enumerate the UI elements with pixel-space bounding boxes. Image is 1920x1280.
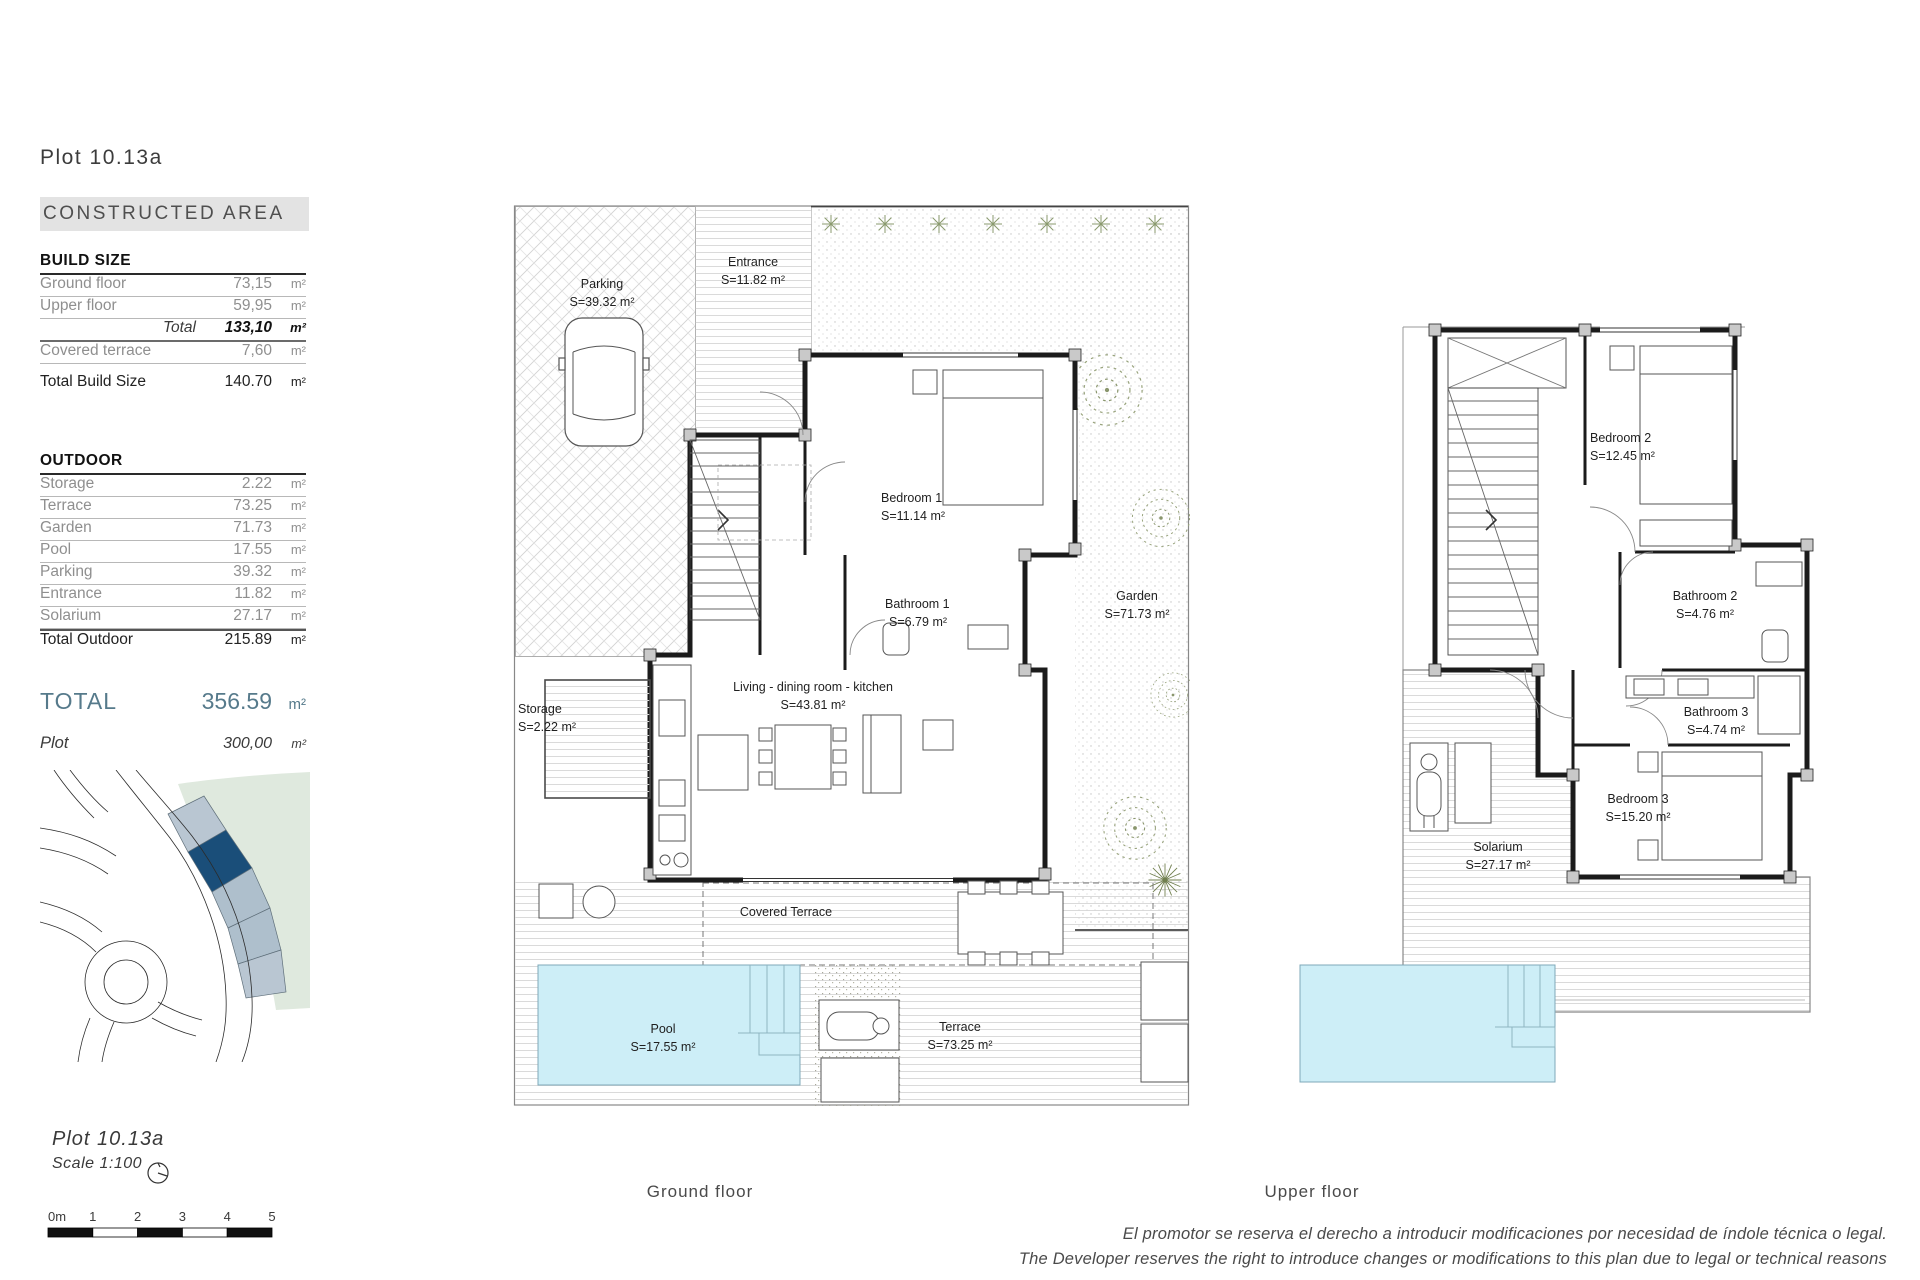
ground-entrance-area: S=11.82 m² — [721, 273, 785, 287]
legal-disclaimer: El promotor se reserva el derecho a intr… — [1019, 1222, 1887, 1272]
table-row: Parking 39.32 m² — [40, 563, 306, 585]
svg-text:3: 3 — [179, 1209, 186, 1224]
upper-bedroom2-label: Bedroom 2 — [1590, 431, 1651, 445]
disclaimer-line-en: The Developer reserves the right to intr… — [1019, 1247, 1887, 1272]
total-build-size-row: Total Build Size 140.70 m² — [40, 373, 306, 394]
disclaimer-line-es: El promotor se reserva el derecho a intr… — [1019, 1222, 1887, 1247]
ground-pool-label: Pool — [650, 1022, 675, 1036]
plot-size-row: Plot 300,00 m² — [40, 734, 306, 753]
table-row: Terrace 73.25 m² — [40, 497, 306, 519]
grand-total-row: TOTAL 356.59 m² — [40, 688, 306, 715]
outdoor-total-row: Total Outdoor 215.89 m² — [40, 629, 306, 652]
upper-bathroom3-label: Bathroom 3 — [1684, 705, 1749, 719]
constructed-area-header: CONSTRUCTED AREA — [40, 197, 309, 231]
upper-solarium-area: S=27.17 m² — [1466, 858, 1531, 872]
table-row: Garden 71.73 m² — [40, 519, 306, 541]
plan-sheet: Plot 10.13a CONSTRUCTED AREA BUILD SIZE … — [0, 0, 1920, 1280]
table-row: Entrance 11.82 m² — [40, 585, 306, 607]
covered-terrace-label: Covered Terrace — [740, 905, 832, 919]
ground-parking-area: S=39.32 m² — [570, 295, 635, 309]
ground-parking-label: Parking — [581, 277, 623, 291]
ground-bedroom1-area: S=11.14 m² — [881, 509, 945, 523]
upper-bathroom2-label: Bathroom 2 — [1673, 589, 1738, 603]
table-row: Ground floor 73,15 m² — [40, 275, 306, 297]
svg-text:5: 5 — [268, 1209, 275, 1224]
build-size-table: BUILD SIZE Ground floor 73,15 m² Upper f… — [40, 250, 306, 394]
car-icon — [559, 318, 649, 446]
ground-floor-plan: Parking S=39.32 m² Entrance S=11.82 m² B… — [513, 200, 1190, 1110]
ground-bathroom1-area: S=6.79 m² — [889, 615, 947, 629]
svg-text:4: 4 — [224, 1209, 231, 1224]
ground-garden-label: Garden — [1116, 589, 1158, 603]
build-total-row: Total 133,10 m² — [40, 319, 306, 342]
table-row: Solarium 27.17 m² — [40, 607, 306, 629]
ground-storage-area: S=2.22 m² — [518, 720, 576, 734]
table-row: Pool 17.55 m² — [40, 541, 306, 563]
ground-entrance-label: Entrance — [728, 255, 778, 269]
site-note-plot: Plot 10.13a — [52, 1128, 164, 1151]
ground-terrace-label: Terrace — [939, 1020, 981, 1034]
upper-bedroom2-area: S=12.45 m² — [1590, 449, 1655, 463]
ground-bathroom1-label: Bathroom 1 — [885, 597, 950, 611]
upper-floor-caption: Upper floor — [1187, 1182, 1437, 1202]
svg-text:2: 2 — [134, 1209, 141, 1224]
upper-pool — [1300, 965, 1555, 1082]
ground-terrace-area: S=73.25 m² — [928, 1038, 993, 1052]
dining-table — [759, 725, 846, 789]
void-cross — [1448, 338, 1566, 388]
upper-bathroom3-area: S=4.74 m² — [1687, 723, 1745, 737]
outdoor-table: OUTDOOR Storage 2.22 m² Terrace 73.25 m²… — [40, 450, 306, 652]
ground-storage-label: Storage — [518, 702, 562, 716]
outdoor-title: OUTDOOR — [40, 450, 306, 475]
ground-storage-room — [545, 680, 650, 798]
ground-bedroom1-label: Bedroom 1 — [881, 491, 942, 505]
table-row: Upper floor 59,95 m² — [40, 297, 306, 319]
page-title: Plot 10.13a — [40, 146, 163, 170]
upper-solarium-label: Solarium — [1473, 840, 1522, 854]
north-compass-icon — [146, 1161, 170, 1185]
table-row: Storage 2.22 m² — [40, 475, 306, 497]
upper-bedroom3-label: Bedroom 3 — [1607, 792, 1668, 806]
ground-living-label: Living - dining room - kitchen — [733, 680, 893, 694]
scale-bar: 0m 1 2 3 4 5 — [40, 1203, 290, 1247]
upper-bedroom3-area: S=15.20 m² — [1606, 810, 1671, 824]
upper-bathroom2-area: S=4.76 m² — [1676, 607, 1734, 621]
ground-garden-area: S=71.73 m² — [1105, 607, 1170, 621]
ground-living-area: S=43.81 m² — [781, 698, 846, 712]
ground-floor-caption: Ground floor — [575, 1182, 825, 1202]
svg-text:1: 1 — [89, 1209, 96, 1224]
svg-text:0m: 0m — [48, 1209, 66, 1224]
upper-floor-plan: Bedroom 2 S=12.45 m² Bathroom 2 S=4.76 m… — [1290, 300, 1830, 1090]
site-location-map — [40, 770, 310, 1062]
build-size-title: BUILD SIZE — [40, 250, 306, 275]
ground-pool-area: S=17.55 m² — [631, 1040, 696, 1054]
table-row: Covered terrace 7,60 m² — [40, 342, 306, 364]
